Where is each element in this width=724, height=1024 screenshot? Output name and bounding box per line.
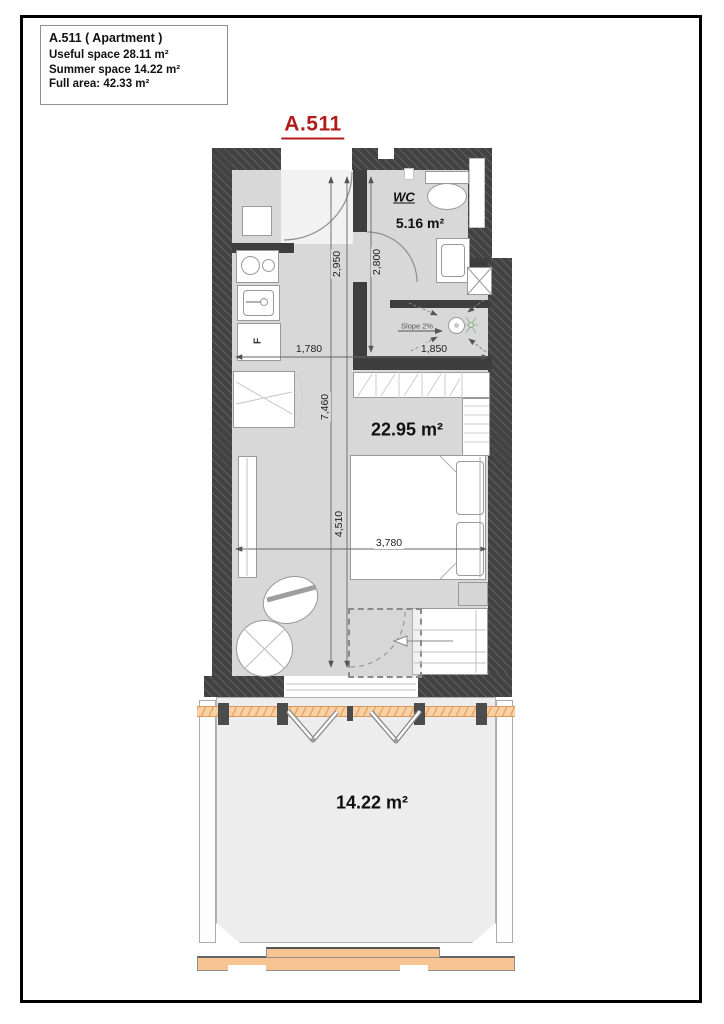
pillow-top	[456, 461, 484, 515]
terrace-floor	[216, 697, 496, 943]
facade-notch-left	[228, 965, 266, 972]
terrace-rail-line	[197, 706, 515, 717]
pillow-bottom	[456, 522, 484, 576]
dim-room-width: 3,780	[374, 537, 404, 549]
toilet-bowl	[427, 183, 467, 210]
shower-curb	[390, 300, 490, 308]
info-summer-space: Summer space 14.22 m²	[49, 64, 219, 76]
dim-wc-width: 1,850	[419, 343, 449, 355]
terrace-post-3	[414, 703, 425, 725]
cooktop-burner-small	[262, 259, 275, 272]
info-full-area: Full area: 42.33 m²	[49, 78, 219, 90]
wall-bottom-left	[204, 676, 284, 697]
wall-notch	[378, 148, 394, 159]
wall-right-lower	[488, 258, 512, 697]
kitchen-sink-basin	[243, 290, 274, 316]
terrace-wall-right	[496, 700, 513, 943]
partition-wc-lower	[353, 282, 367, 358]
terrace-post-4	[476, 703, 487, 725]
wall-left	[212, 148, 232, 697]
cooktop-burner-large	[241, 256, 260, 275]
info-useful-space: Useful space 28.11 m²	[49, 49, 219, 61]
apartment-info-box: A.511 ( Apartment ) Useful space 28.11 m…	[40, 25, 228, 105]
dim-wc-length: 2,800	[371, 247, 383, 277]
builtin-closet-top	[353, 372, 490, 398]
fridge-label: F	[253, 338, 264, 344]
wall-niche	[469, 158, 485, 228]
washing-machine	[242, 206, 272, 236]
round-table	[236, 620, 293, 677]
radiator	[458, 582, 488, 606]
entry-vestibule-floor	[281, 170, 353, 244]
wardrobe-left	[233, 371, 295, 428]
terrace-door-sill	[284, 678, 418, 696]
shower-drain-center	[454, 323, 459, 328]
info-title: A.511 ( Apartment )	[49, 31, 219, 45]
washbasin-sink	[441, 244, 465, 277]
wall-bottom-right	[418, 673, 512, 697]
sideboard	[238, 456, 257, 578]
plan-title: A.511	[281, 113, 344, 140]
dim-room-length: 4,510	[333, 509, 345, 539]
terrace-post-2	[277, 703, 288, 725]
partition-wc-mainroom	[353, 356, 492, 370]
wc-room-label: WC	[393, 190, 415, 205]
terrace-post-1	[218, 703, 229, 725]
facade-notch-right	[400, 965, 428, 972]
terrace-post-center	[347, 706, 353, 721]
terrace-door-swing-zone	[348, 608, 422, 678]
dim-interior-length: 7,460	[319, 392, 331, 422]
bench-storage	[412, 608, 488, 675]
main-room-area-label: 22.95 m²	[371, 420, 443, 441]
partition-wc-upper	[353, 170, 367, 232]
wc-area-label: 5.16 m²	[396, 215, 444, 231]
duct-shaft	[467, 267, 492, 295]
slope-label: Slope 2%	[401, 322, 433, 331]
wc-vent	[404, 168, 414, 180]
facade-strip-center	[266, 947, 440, 958]
terrace-area-label: 14.22 m²	[336, 793, 408, 814]
dim-hall-length: 2,950	[331, 249, 343, 279]
builtin-closet-right	[462, 398, 490, 456]
terrace-wall-left	[199, 700, 216, 943]
dim-hall-width: 1,780	[294, 343, 324, 355]
